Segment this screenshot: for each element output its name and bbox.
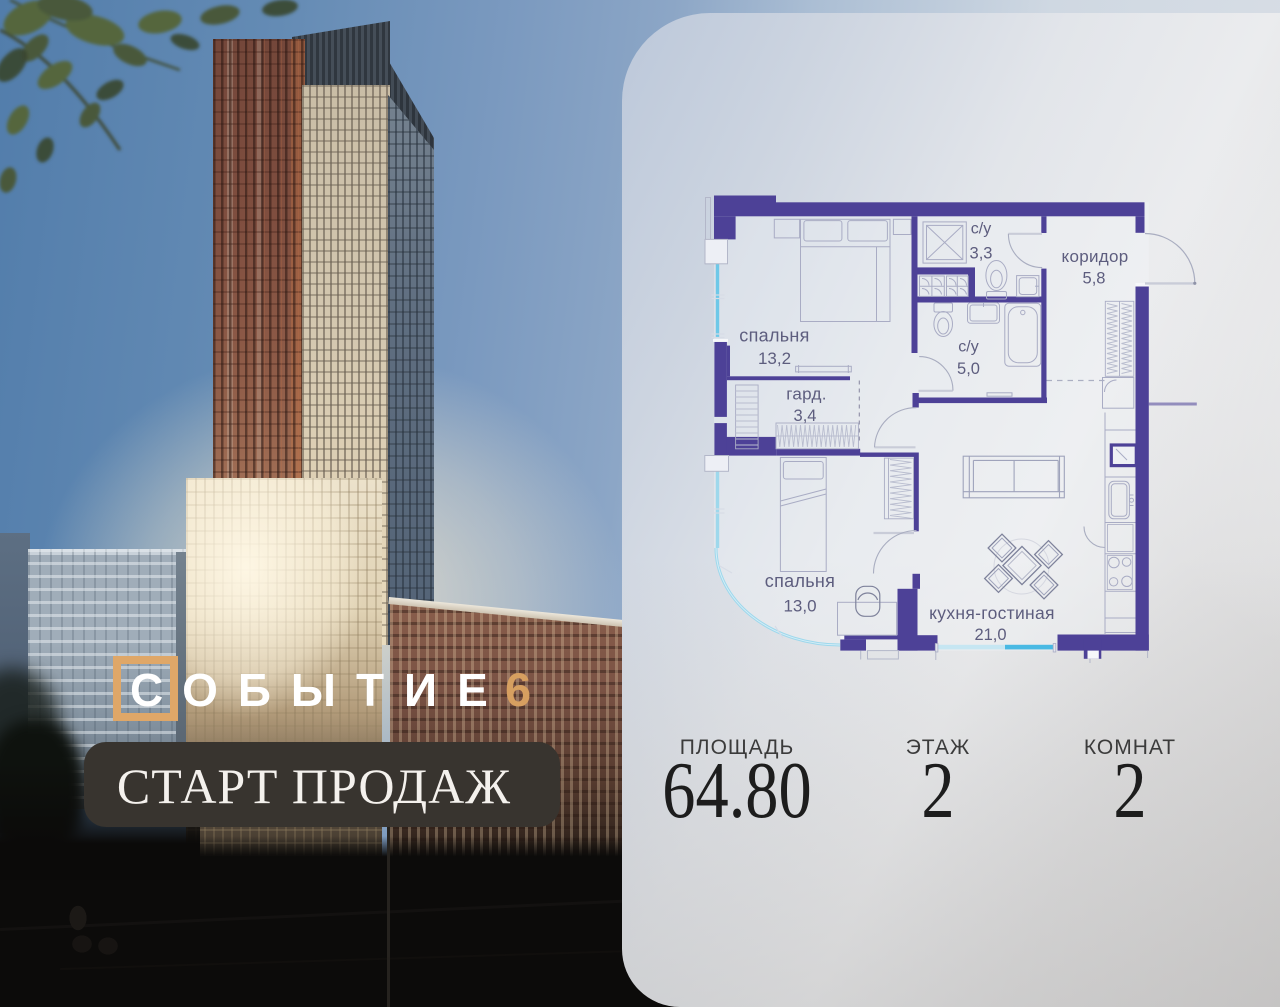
svg-text:13,2: 13,2 <box>758 349 791 368</box>
svg-text:13,0: 13,0 <box>783 597 816 616</box>
svg-text:с/у: с/у <box>958 339 978 356</box>
svg-text:спальня: спальня <box>765 571 835 591</box>
svg-text:5,0: 5,0 <box>957 360 980 378</box>
svg-text:с/у: с/у <box>971 221 991 238</box>
svg-text:3,4: 3,4 <box>794 407 817 425</box>
svg-text:коридор: коридор <box>1062 247 1129 266</box>
svg-text:5,8: 5,8 <box>1083 270 1106 288</box>
svg-text:спальня: спальня <box>739 326 809 346</box>
svg-text:3,3: 3,3 <box>970 245 993 263</box>
svg-text:21,0: 21,0 <box>974 626 1006 644</box>
svg-text:гард.: гард. <box>786 385 827 404</box>
svg-text:кухня-гостиная: кухня-гостиная <box>929 603 1055 623</box>
